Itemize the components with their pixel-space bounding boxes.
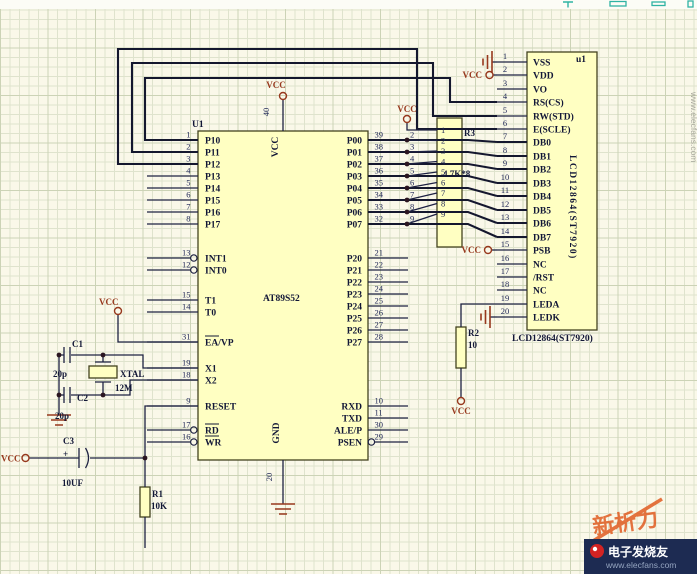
- junction-dot: [57, 393, 62, 398]
- r3-tap-number: 9: [410, 214, 414, 224]
- lcd-caption: LCD12864(ST7920): [512, 333, 593, 344]
- lcd-pin-label: /RST: [532, 274, 555, 284]
- capacitor-c3-plate-curved: [86, 448, 89, 468]
- mcu-pin-label: P16: [205, 209, 221, 219]
- c3-value: 10UF: [62, 478, 83, 488]
- mcu-pin-number: 8: [186, 214, 190, 224]
- junction-dot: [57, 353, 62, 358]
- lcd-pin-number: 19: [501, 293, 510, 303]
- lcd-pin-label: NC: [533, 261, 547, 271]
- junction-dot: [405, 150, 410, 155]
- mcu-pin-number: 25: [375, 296, 384, 306]
- junction-dot: [405, 198, 410, 203]
- mcu-pin-label: PSEN: [338, 439, 362, 449]
- lcd-pin-label: DB4: [533, 193, 551, 203]
- mcu-pin-number: 38: [375, 142, 384, 152]
- resistor-r2-body: [456, 327, 466, 368]
- mcu-pin-label: P07: [347, 221, 363, 231]
- lcd-pin-number: 8: [503, 145, 507, 155]
- lcd-pin-number: 14: [501, 226, 510, 236]
- lcd-pin-number: 2: [503, 64, 507, 74]
- junction-dot: [405, 222, 410, 227]
- lcd-pin-label: RS(CS): [533, 98, 564, 109]
- capacitor-c1-plates: [64, 347, 70, 363]
- c2-ref: C2: [77, 393, 88, 403]
- vcc-terminal-icon: [280, 93, 287, 100]
- mcu-pin-label: WR: [205, 439, 222, 449]
- lcd-pin-label: DB1: [533, 153, 551, 163]
- junction-dot: [405, 186, 410, 191]
- lcd-pin-label: DB2: [533, 166, 551, 176]
- schematic-svg: U1 AT89S52 40 VCC 20 GND VCC VCC VCC VCC…: [0, 0, 697, 574]
- vcc-terminal-icon: [115, 308, 122, 315]
- r3-pin-number: 6: [441, 178, 445, 188]
- r3-value: 4.7K*8: [443, 169, 471, 179]
- mcu-pin-number: 18: [182, 370, 191, 380]
- mcu-pin-number: 22: [375, 260, 384, 270]
- mcu-pin-label: P25: [347, 315, 363, 325]
- junction-dot: [405, 174, 410, 179]
- mcu-ref: U1: [192, 120, 204, 130]
- lcd-pin-label: LEDK: [533, 314, 561, 324]
- active-low-bubble-icon: [191, 427, 197, 433]
- ground-icon: [483, 51, 492, 73]
- lcd-pin-label: DB0: [533, 139, 551, 149]
- mcu-pin-label: P26: [347, 327, 363, 337]
- vcc-label: VCC: [462, 245, 482, 255]
- brand-logo-highlight-icon: [593, 547, 597, 551]
- lcd-pin-number: 20: [501, 306, 510, 316]
- mcu-pin-label: INT1: [205, 255, 227, 265]
- mcu-pin-number: 34: [375, 190, 384, 200]
- lcd-vertical-label: LCD12864(ST7920): [567, 155, 578, 260]
- mcu-pin-label: P01: [347, 149, 363, 159]
- mcu-pin-label: P13: [205, 173, 221, 183]
- lcd-pin-number: 9: [503, 158, 507, 168]
- wire-x2: [71, 380, 198, 395]
- mcu-pin-label: P10: [205, 137, 221, 147]
- mcu-pin-label: P11: [205, 149, 220, 159]
- lcd-pin-label: NC: [533, 287, 547, 297]
- mcu-pin-number: 9: [186, 396, 190, 406]
- wire-p01-db1: [368, 152, 497, 156]
- vcc-terminal-icon: [404, 116, 411, 123]
- mcu-pin-label: INT0: [205, 267, 227, 277]
- mcu-pin-number: 31: [182, 332, 191, 342]
- mcu-pin-label: P06: [347, 209, 363, 219]
- mcu-pin-number: 36: [375, 166, 384, 176]
- lcd-pin-label: DB5: [533, 207, 551, 217]
- junction-dot: [101, 393, 106, 398]
- lcd-pin-label: RW(STD): [533, 112, 574, 123]
- mcu-pin-label: RESET: [205, 403, 237, 413]
- mcu-pin-number: 32: [375, 214, 384, 224]
- r2-value: 10: [468, 340, 478, 350]
- r3-tap-number: 6: [410, 178, 414, 188]
- mcu-pin-number: 5: [186, 178, 190, 188]
- mcu-pin-label: TXD: [342, 415, 362, 425]
- vcc-terminal-icon: [485, 247, 492, 254]
- c2-value: 20p: [55, 411, 69, 421]
- mcu-pin-number: 37: [375, 154, 384, 164]
- r1-ref: R1: [152, 489, 163, 499]
- lcd-pin-number: 10: [501, 172, 510, 182]
- active-low-bubble-icon: [191, 267, 197, 273]
- wire-p06-db6: [368, 212, 497, 223]
- lcd-pin-number: 16: [501, 253, 510, 263]
- vcc-terminal-icon: [458, 398, 465, 405]
- r3-tap-number: 3: [410, 142, 414, 152]
- mcu-pin-label: T0: [205, 309, 216, 319]
- lcd-ref: u1: [576, 55, 586, 65]
- lcd-pin-number: 5: [503, 105, 507, 115]
- mcu-pin-label: P14: [205, 185, 221, 195]
- wire-r3-tap-2: [407, 140, 437, 141]
- vcc-label: VCC: [397, 104, 417, 114]
- mcu-pin-number: 13: [182, 248, 191, 258]
- lcd-pin-label: DB7: [533, 234, 551, 244]
- lcd-pin-label: VO: [533, 86, 547, 96]
- mcu-pin-number: 21: [375, 248, 384, 258]
- lcd-pin-label: VDD: [533, 72, 554, 82]
- mcu-pin-number: 17: [182, 420, 191, 430]
- junction-dot: [143, 456, 148, 461]
- vcc-label: VCC: [451, 406, 471, 416]
- wire-reset: [145, 406, 198, 487]
- r3-pin-number: 1: [441, 125, 445, 135]
- mcu-pin-number: 6: [186, 190, 190, 200]
- capacitor-c2-plates: [64, 387, 70, 403]
- mcu-pin-number: 39: [375, 130, 384, 140]
- mcu-pin-label: P15: [205, 197, 221, 207]
- lcd-pin-number: 13: [501, 212, 510, 222]
- ground-icon: [481, 306, 490, 328]
- mcu-pin-label: P00: [347, 137, 363, 147]
- lcd-pin-label: LEDA: [533, 301, 560, 311]
- wire-p04-db4: [368, 188, 497, 196]
- mcu-pin-label: P02: [347, 161, 363, 171]
- mcu-pin-label: P12: [205, 161, 221, 171]
- wire-p02-db2: [368, 164, 497, 169]
- r3-pin-number: 3: [441, 146, 445, 156]
- junction-dot: [405, 162, 410, 167]
- mcu-pin-label: EA/VP: [205, 339, 234, 349]
- mcu-pin-label: P21: [347, 267, 363, 277]
- mcu-pin-number: 28: [375, 332, 384, 342]
- brand-logo-icon: [590, 544, 604, 558]
- mcu-pin-number: 2: [186, 142, 190, 152]
- mcu-pin-number: 11: [375, 408, 383, 418]
- mcu-pin-label: X1: [205, 365, 217, 375]
- mcu-pin-number: 12: [182, 260, 191, 270]
- mcu-pin-number: 19: [182, 358, 191, 368]
- vcc-terminal-icon: [22, 455, 29, 462]
- mcu-pin-label: P05: [347, 197, 363, 207]
- lcd-pin-label: E(SCLE): [533, 125, 570, 136]
- r3-tap-number: 8: [410, 202, 414, 212]
- c3-ref: C3: [63, 436, 74, 446]
- brand-url: www.elecfans.com: [605, 560, 676, 570]
- mcu-pin-label: P03: [347, 173, 363, 183]
- lcd-pin-number: 1: [503, 51, 507, 61]
- stamp-watermark: 新析力: [588, 499, 662, 544]
- r3-tap-number: 5: [410, 166, 414, 176]
- mcu-pin-label: P27: [347, 339, 363, 349]
- mcu-pin-number: 16: [182, 432, 191, 442]
- mcu-pin-number: 24: [375, 284, 384, 294]
- mcu-part-label: AT89S52: [263, 294, 300, 304]
- lcd-pin-number: 7: [503, 131, 507, 141]
- side-watermark-url: www.elecfans.com: [689, 91, 697, 162]
- r1-value: 10K: [151, 501, 167, 511]
- mcu-pin-number: 30: [375, 420, 384, 430]
- mcu-pin-number: 35: [375, 178, 384, 188]
- c1-value: 20p: [53, 369, 67, 379]
- mcu-pin-number: 33: [375, 202, 384, 212]
- lcd-pin-label: PSB: [533, 247, 551, 257]
- mcu-pin-label: P23: [347, 291, 363, 301]
- vcc-label: VCC: [266, 80, 286, 90]
- junction-dot: [405, 210, 410, 215]
- wire-leda-to-r2: [461, 304, 497, 327]
- xtal-value: 12M: [115, 383, 133, 393]
- resistor-r1-body: [140, 487, 150, 517]
- lcd-pin-label: DB6: [533, 220, 551, 230]
- mcu-pin-number: 26: [375, 308, 384, 318]
- active-low-bubble-icon: [191, 255, 197, 261]
- mcu-vcc-pin-label: VCC: [271, 137, 281, 158]
- r2-ref: R2: [468, 328, 479, 338]
- brand-name: 电子发烧友: [608, 544, 668, 559]
- vcc-label: VCC: [1, 454, 21, 464]
- r3-ref: R3: [464, 128, 475, 138]
- mcu-pin-number: 27: [375, 320, 384, 330]
- r3-tap-number: 2: [410, 130, 414, 140]
- r3-pin-number: 8: [441, 199, 445, 209]
- brand-watermark-strip: 电子发烧友 www.elecfans.com: [584, 539, 697, 574]
- mcu-pin-number: 4: [186, 166, 191, 176]
- mcu-pin-label: P04: [347, 185, 363, 195]
- r3-pin-number: 5: [441, 167, 445, 177]
- mcu-pin-number: 23: [375, 272, 384, 282]
- mcu-pin-label: T1: [205, 297, 216, 307]
- junction-dot: [101, 353, 106, 358]
- vcc-label: VCC: [463, 70, 483, 80]
- mcu-pin-number: 1: [186, 130, 190, 140]
- junction-dot: [405, 138, 410, 143]
- r3-pin-number: 9: [441, 209, 445, 219]
- mcu-pin40-num: 40: [261, 108, 271, 117]
- mcu-pin-label: RXD: [341, 403, 362, 413]
- vcc-label: VCC: [99, 297, 119, 307]
- r3-tap-number: 4: [410, 154, 415, 164]
- mcu-pin-number: 29: [375, 432, 384, 442]
- mcu-pin-number: 10: [375, 396, 384, 406]
- wire-c1-gnd-rail: [59, 355, 64, 415]
- crystal-body: [89, 366, 117, 378]
- lcd-pin-number: 17: [501, 266, 510, 276]
- mcu-pin-label: P17: [205, 221, 221, 231]
- lcd-pin-label: DB3: [533, 180, 551, 190]
- r3-tap-number: 7: [410, 190, 414, 200]
- mcu-pin-label: ALE/P: [334, 427, 362, 437]
- top-band: [0, 0, 697, 9]
- mcu-gnd-pin-label: GND: [272, 422, 282, 443]
- xtal-ref: XTAL: [120, 369, 144, 379]
- lcd-pin-number: 12: [501, 199, 510, 209]
- active-low-bubble-icon: [368, 439, 374, 445]
- lcd-pin-number: 11: [501, 185, 509, 195]
- c3-polarity-plus: +: [63, 449, 68, 459]
- mcu-pin-number: 15: [182, 290, 191, 300]
- mcu-pin-number: 7: [186, 202, 190, 212]
- mcu-pin-label: P22: [347, 279, 363, 289]
- lcd-pin-number: 4: [503, 91, 508, 101]
- wire-p03-db3: [368, 176, 497, 183]
- vcc-terminal-icon: [486, 72, 493, 79]
- mcu-pin-label: P20: [347, 255, 363, 265]
- c1-ref: C1: [72, 339, 83, 349]
- r3-pin-number: 7: [441, 188, 445, 198]
- lcd-pin-number: 18: [501, 279, 510, 289]
- mcu-pin-label: RD: [205, 427, 219, 437]
- lcd-pin-number: 15: [501, 239, 510, 249]
- mcu-pin-number: 3: [186, 154, 190, 164]
- wire-p07-db7: [368, 224, 497, 237]
- lcd-pin-label: VSS: [533, 59, 550, 69]
- schematic-canvas: U1 AT89S52 40 VCC 20 GND VCC VCC VCC VCC…: [0, 0, 697, 574]
- ground-icon: [271, 504, 295, 514]
- lcd-pin-number: 6: [503, 118, 507, 128]
- r3-pin-number: 2: [441, 136, 445, 146]
- mcu-pin20-num: 20: [264, 473, 274, 482]
- mcu-pin-number: 14: [182, 302, 191, 312]
- mcu-pin-label: P24: [347, 303, 363, 313]
- mcu-pin-label: X2: [205, 377, 217, 387]
- active-low-bubble-icon: [191, 439, 197, 445]
- lcd-pin-number: 3: [503, 78, 507, 88]
